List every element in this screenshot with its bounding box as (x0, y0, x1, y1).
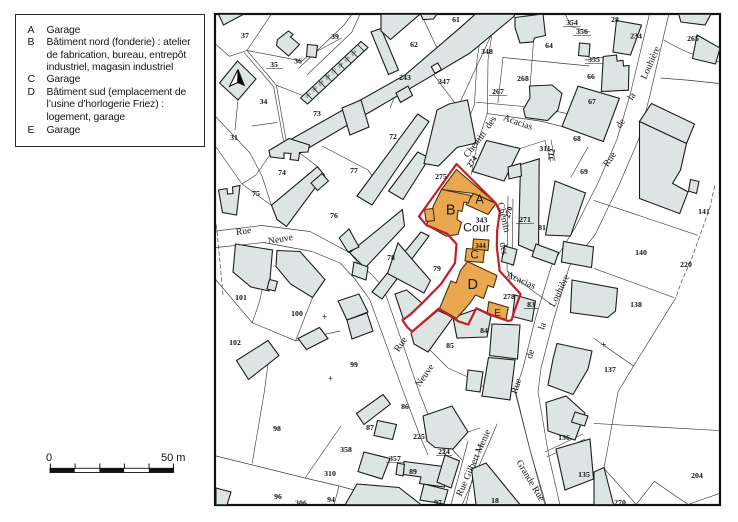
svg-text:306: 306 (295, 499, 307, 508)
svg-text:136: 136 (558, 433, 570, 442)
svg-text:79: 79 (433, 264, 441, 273)
svg-text:275: 275 (435, 172, 447, 181)
svg-text:66: 66 (587, 72, 595, 81)
svg-text:94: 94 (327, 495, 335, 504)
svg-text:98: 98 (273, 424, 281, 433)
svg-text:68: 68 (573, 134, 581, 143)
svg-text:268: 268 (517, 74, 529, 83)
svg-text:140: 140 (635, 248, 647, 257)
svg-text:62: 62 (410, 40, 418, 49)
svg-text:96: 96 (274, 492, 282, 501)
svg-text:356: 356 (576, 27, 588, 36)
svg-text:348: 348 (481, 47, 493, 56)
svg-text:18: 18 (491, 496, 499, 505)
svg-text:137: 137 (604, 365, 616, 374)
svg-text:101: 101 (235, 293, 247, 302)
svg-text:69: 69 (580, 167, 588, 176)
svg-text:B: B (446, 203, 456, 219)
svg-text:85: 85 (446, 341, 454, 350)
svg-text:355: 355 (588, 55, 600, 64)
svg-text:67: 67 (588, 97, 596, 106)
svg-text:86: 86 (401, 402, 409, 411)
svg-text:E: E (494, 308, 501, 319)
svg-text:234: 234 (630, 32, 642, 41)
svg-text:83: 83 (527, 300, 535, 309)
svg-text:39: 39 (331, 32, 339, 41)
svg-text:28: 28 (611, 15, 619, 24)
svg-text:72: 72 (389, 132, 397, 141)
svg-text:74: 74 (278, 168, 286, 177)
svg-text:78: 78 (387, 253, 395, 262)
svg-text:354: 354 (566, 18, 578, 27)
svg-text:D: D (467, 277, 477, 293)
svg-text:224: 224 (438, 447, 450, 456)
svg-text:271: 271 (519, 215, 531, 224)
svg-text:des: des (497, 241, 510, 256)
svg-text:89: 89 (409, 467, 417, 476)
svg-text:84: 84 (480, 326, 488, 335)
svg-text:99: 99 (350, 360, 358, 369)
svg-text:204: 204 (691, 471, 703, 480)
svg-text:267: 267 (492, 87, 504, 96)
svg-text:C: C (470, 250, 478, 262)
svg-text:243: 243 (399, 73, 411, 82)
svg-text:278: 278 (503, 292, 515, 301)
svg-text:76: 76 (330, 211, 338, 220)
svg-text:358: 358 (340, 445, 352, 454)
svg-text:225: 225 (413, 432, 425, 441)
svg-text:Rue: Rue (235, 225, 252, 238)
svg-text:357: 357 (389, 454, 401, 463)
svg-text:310: 310 (324, 469, 336, 478)
svg-text:36: 36 (294, 57, 302, 66)
svg-text:34: 34 (260, 97, 268, 106)
svg-text:37: 37 (241, 31, 249, 40)
svg-text:35: 35 (270, 60, 278, 69)
svg-text:138: 138 (630, 300, 642, 309)
svg-text:A: A (475, 193, 484, 207)
svg-text:Cour: Cour (463, 221, 490, 235)
svg-text:100: 100 (291, 309, 303, 318)
svg-text:102: 102 (229, 338, 241, 347)
svg-text:220: 220 (680, 260, 692, 269)
svg-text:81: 81 (538, 223, 546, 232)
svg-text:64: 64 (545, 41, 553, 50)
svg-text:135: 135 (578, 470, 590, 479)
svg-text:75: 75 (252, 189, 260, 198)
svg-text:265: 265 (687, 34, 699, 43)
svg-text:87: 87 (366, 423, 374, 432)
svg-text:73: 73 (313, 109, 321, 118)
svg-text:347: 347 (438, 77, 450, 86)
svg-text:61: 61 (452, 15, 460, 24)
svg-text:31: 31 (230, 133, 238, 142)
svg-text:141: 141 (698, 207, 710, 216)
svg-text:77: 77 (350, 166, 358, 175)
